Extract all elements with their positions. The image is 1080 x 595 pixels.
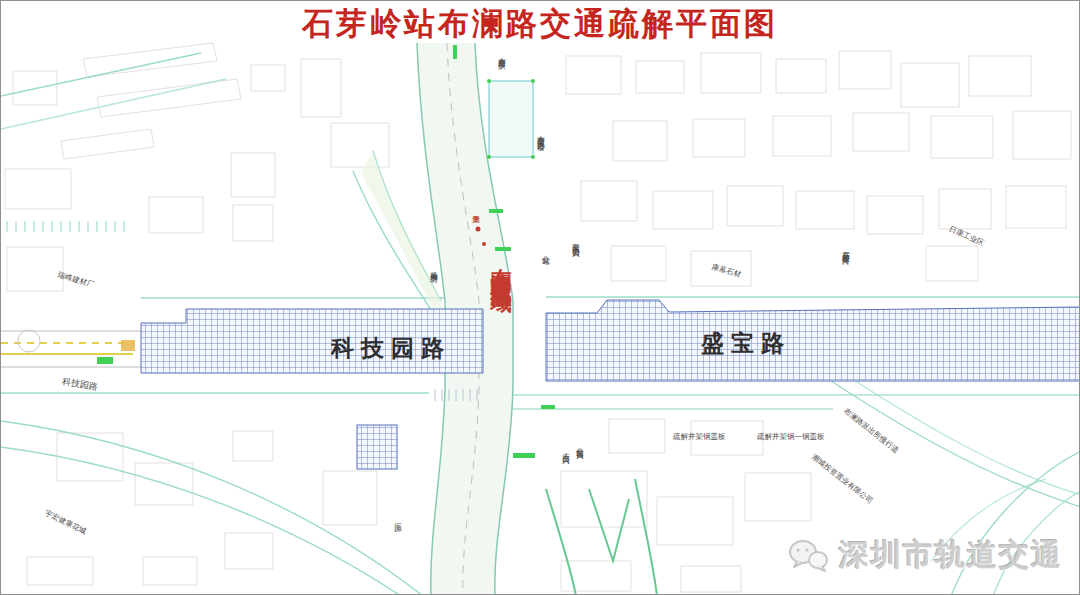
diversion-zone-label: 布澜路交通疏解区域 [487,251,515,278]
map-label: 公交站 [542,249,550,252]
planting-layer [546,479,657,595]
map-label: 疏解井架钢盖板 [673,433,726,441]
map-label: 布吉交警中队 [498,51,506,57]
traffic-plan-page: 石芽岭站布澜路交通疏解平面图 科技园路 盛宝路 布澜路交通疏解区域 布吉交警中队… [0,0,1080,595]
map-label: 布吉交警中队办公楼 [537,129,545,138]
map-label: 人行出入口 [562,447,570,452]
watermark: 深圳市轨道交通 [787,535,1063,576]
map-label: 汇源 [394,517,402,519]
map-label: 疏解井架钢一钢盖板 [757,433,825,441]
page-title: 石芽岭站布澜路交通疏解平面图 [1,3,1079,45]
map-label: 测量 [472,209,480,211]
map-canvas [1,1,1080,595]
left-approach-road [1,330,143,367]
map-label: 交警中队办公入口 [572,237,580,245]
road-label-shengbao: 盛宝路 [701,328,791,359]
tick-row [7,221,124,232]
map-label: 杨美海鲜坊 [430,265,438,270]
hatch-corridor-right [546,300,1080,381]
hatch-block-small [357,425,397,469]
wechat-icon [787,538,829,574]
police-compound [487,79,535,159]
map-label: 公交站台入口 [576,441,584,447]
diversion-corridor [141,300,1080,469]
watermark-text: 深圳市轨道交通 [839,535,1063,576]
road-label-kejiyuan: 科技园路 [331,333,451,364]
map-label: 石芽岭公园方向 [842,245,850,252]
